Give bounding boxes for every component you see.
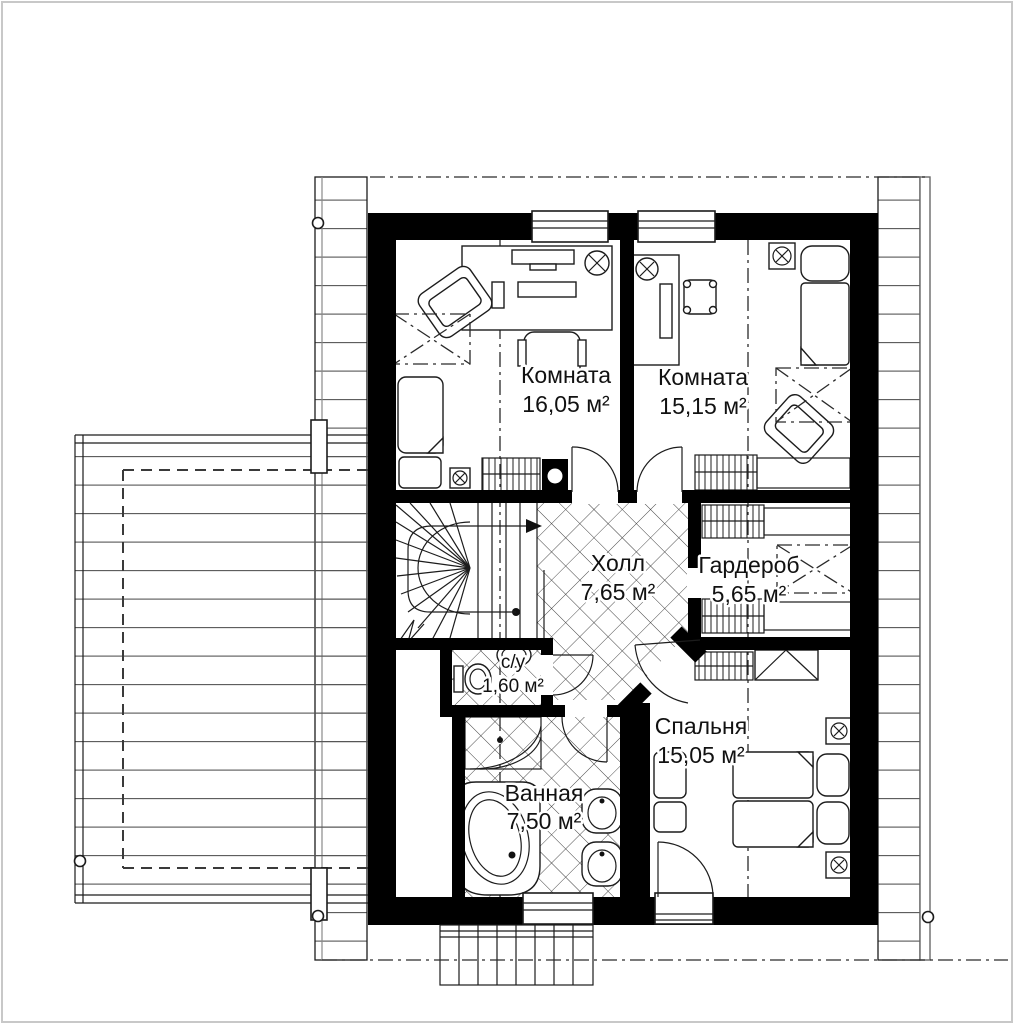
- partition-rooms: [620, 240, 634, 490]
- armchair: [761, 391, 838, 467]
- partition-bath-bedroom: [620, 703, 650, 897]
- door-room-1: [572, 447, 618, 492]
- monitor: [660, 284, 672, 338]
- office-chair: [684, 280, 717, 314]
- door-room-2: [637, 447, 682, 492]
- monitor: [512, 250, 574, 264]
- door-opening-bathroom: [565, 705, 607, 717]
- gutter-double-line: [920, 177, 930, 960]
- roof-strip-right: [878, 177, 920, 960]
- wardrobe-cabinet: [755, 650, 818, 680]
- monitor-stand: [530, 264, 556, 270]
- pc-tower: [492, 282, 504, 308]
- socket-icon: [450, 468, 470, 488]
- dresser: [654, 802, 686, 832]
- partition-stairs-south: [396, 638, 553, 650]
- hall-name: Холл: [591, 550, 645, 576]
- nightstand-lamp: [826, 718, 852, 744]
- window-bathroom: [523, 893, 593, 924]
- bed-single: [398, 377, 443, 453]
- wardrobe-name: Гардероб: [698, 552, 799, 578]
- staircase: [396, 503, 544, 645]
- door-balcony: [658, 842, 713, 897]
- roof-edge-right-strip: [878, 177, 930, 960]
- mattress: [733, 801, 813, 847]
- bathroom-area: 7,50 м²: [507, 808, 582, 834]
- bedroom-area: 15,05 м²: [657, 742, 745, 768]
- balcony-door-opening: [655, 893, 713, 924]
- floor-plan-page: Комната 16,05 м² Комната 15,15 м² Холл 7…: [0, 0, 1014, 1024]
- room-1-name: Комната: [521, 362, 611, 388]
- window-top-1: [532, 211, 608, 242]
- wall-bottom: [368, 897, 878, 925]
- stair-winders: [396, 503, 470, 645]
- room-2-name: Комната: [658, 364, 748, 390]
- nightstand: [399, 457, 441, 488]
- room-2-area: 15,15 м²: [659, 393, 747, 419]
- axis-marker: [923, 912, 934, 923]
- chimney-block: [542, 459, 568, 493]
- nightstand-lamp: [826, 852, 852, 878]
- wall-right: [850, 213, 878, 925]
- partition-bedroom-north: [688, 637, 852, 650]
- keyboard: [518, 282, 576, 297]
- pillow: [801, 246, 849, 281]
- axis-marker: [313, 911, 324, 922]
- partition-hall-north: [396, 490, 852, 503]
- mattress: [733, 752, 813, 798]
- bathroom-wall-left: [452, 717, 465, 897]
- socket-icon: [769, 243, 795, 269]
- porch-steps: [440, 925, 593, 985]
- lamp-icon: [585, 251, 609, 275]
- pillow: [817, 754, 849, 796]
- room-1-area: 16,05 м²: [522, 391, 610, 417]
- shelf: [764, 508, 852, 535]
- terrace: [75, 420, 368, 920]
- wall-left: [368, 213, 396, 925]
- door-opening-room-1: [572, 489, 618, 504]
- wardrobe-area: 5,65 м²: [712, 581, 787, 607]
- bathroom-name: Ванная: [505, 780, 584, 806]
- bedroom-name: Спальня: [655, 713, 747, 739]
- sink: [582, 789, 622, 833]
- door-opening-room-2: [637, 489, 682, 504]
- stair-direction-arrow: [408, 519, 542, 616]
- sink: [582, 842, 622, 886]
- window-top-2: [638, 211, 715, 242]
- terrace-post-top: [311, 420, 327, 473]
- stair-newel-curve: [418, 522, 470, 614]
- lamp-icon: [636, 258, 658, 280]
- wc-area: 1,60 м²: [482, 676, 544, 697]
- hall-area: 7,65 м²: [581, 579, 656, 605]
- floor-plan-drawing: Комната 16,05 м² Комната 15,15 м² Холл 7…: [0, 0, 1014, 1024]
- wc-name: с/у: [501, 652, 526, 673]
- pillow: [817, 802, 849, 844]
- bed-single: [801, 283, 849, 365]
- axis-marker: [75, 856, 86, 867]
- axis-marker: [313, 218, 324, 229]
- wall-top: [368, 213, 878, 240]
- terrace-planks: [75, 435, 368, 903]
- double-bed: [733, 752, 849, 847]
